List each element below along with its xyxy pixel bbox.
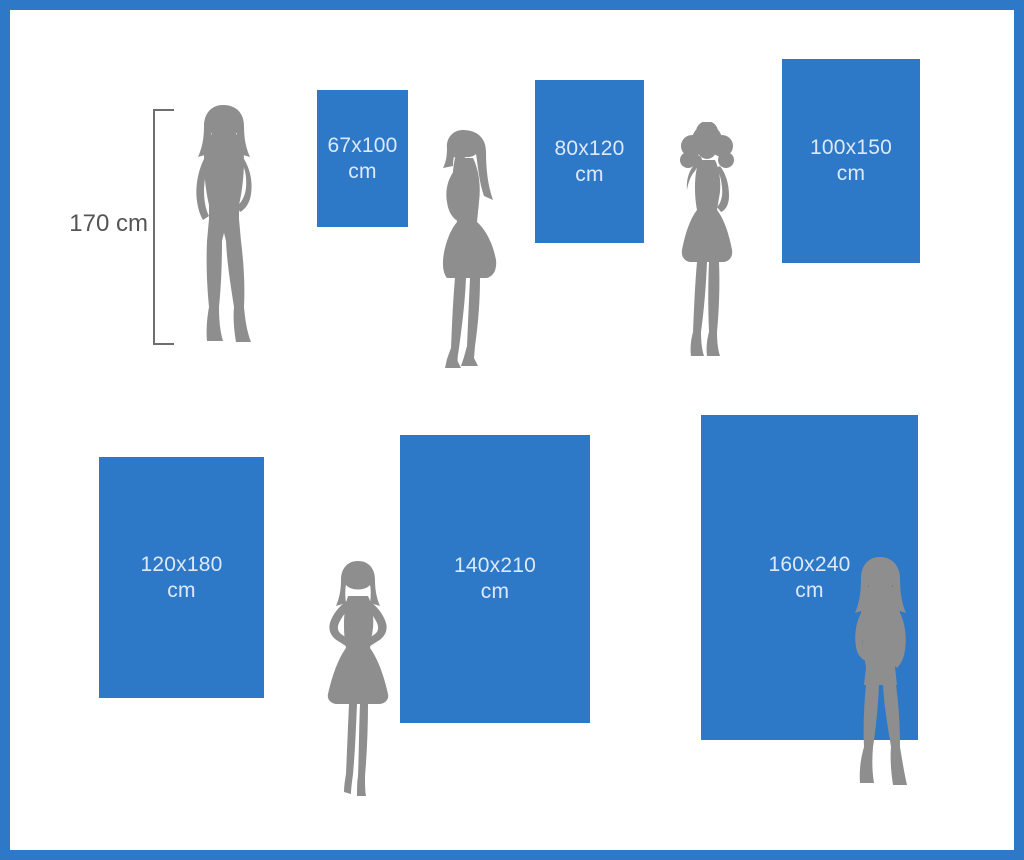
size-value: 120x180 — [141, 552, 223, 578]
size-label: 140x210 cm — [454, 553, 536, 605]
size-box-67x100: 67x100 cm — [317, 90, 408, 227]
size-box-80x120: 80x120 cm — [535, 80, 644, 243]
woman-silhouette-profile-dress — [433, 128, 509, 370]
woman-silhouette-hands-on-hips — [305, 560, 411, 798]
size-unit: cm — [454, 579, 536, 605]
size-label: 80x120 cm — [554, 136, 624, 188]
woman-silhouette-curly-hair — [664, 122, 750, 362]
size-unit: cm — [141, 578, 223, 604]
size-value: 80x120 — [554, 136, 624, 162]
height-measure-bracket — [153, 109, 174, 345]
size-label: 120x180 cm — [141, 552, 223, 604]
size-value: 67x100 — [327, 133, 397, 159]
woman-silhouette-front-boots-2 — [836, 555, 922, 795]
size-comparison-diagram: 170 cm 67x100 cm — [0, 0, 1024, 860]
size-box-100x150: 100x150 cm — [782, 59, 920, 263]
size-unit: cm — [554, 162, 624, 188]
size-label: 100x150 cm — [810, 135, 892, 187]
size-box-140x210: 140x210 cm — [400, 435, 590, 723]
size-box-120x180: 120x180 cm — [99, 457, 264, 698]
size-unit: cm — [810, 161, 892, 187]
size-label: 67x100 cm — [327, 133, 397, 185]
size-unit: cm — [327, 159, 397, 185]
height-measure-label: 170 cm — [38, 210, 148, 238]
size-value: 100x150 — [810, 135, 892, 161]
size-value: 140x210 — [454, 553, 536, 579]
woman-silhouette-front-boots — [178, 103, 268, 348]
